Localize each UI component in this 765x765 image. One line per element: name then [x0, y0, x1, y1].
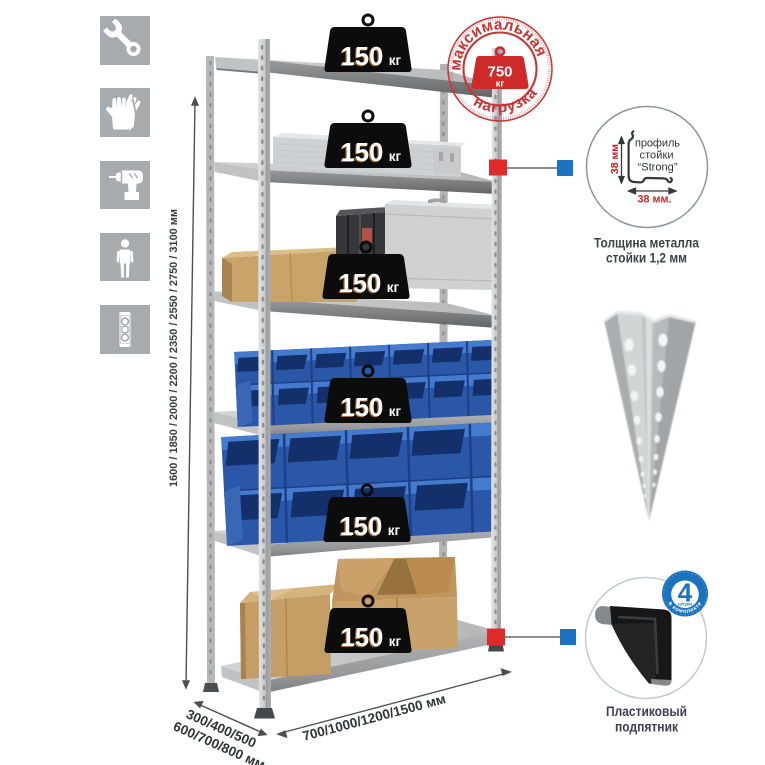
svg-text:1600 / 1850 / 2000 / 2200 / 23: 1600 / 1850 / 2000 / 2200 / 2350 / 2550 … [168, 209, 180, 487]
svg-text:Толщина металла: Толщина металла [594, 236, 699, 251]
svg-text:38 мм.: 38 мм. [638, 194, 672, 206]
svg-text:штуки: штуки [678, 602, 692, 607]
svg-text:стойки: стойки [640, 150, 674, 162]
svg-text:кг: кг [496, 79, 505, 90]
svg-text:Пластиковый: Пластиковый [606, 704, 687, 719]
svg-text:38 мм: 38 мм [609, 144, 621, 174]
svg-text:стойки 1,2 мм: стойки 1,2 мм [606, 251, 687, 266]
svg-text:700/1000/1200/1500 мм: 700/1000/1200/1500 мм [301, 691, 447, 744]
svg-text:“Strong”: “Strong” [638, 162, 678, 174]
svg-text:профиль: профиль [635, 138, 680, 150]
svg-text:подпятник: подпятник [615, 720, 678, 735]
